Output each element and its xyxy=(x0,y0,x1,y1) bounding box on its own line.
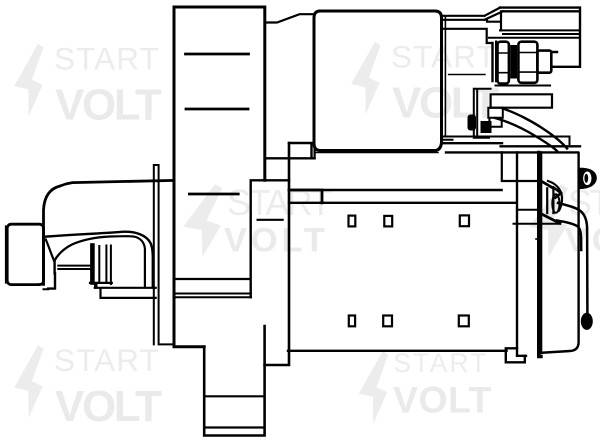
svg-text:START: START xyxy=(394,348,489,378)
svg-text:VOLT: VOLT xyxy=(224,222,329,260)
svg-text:VOLT: VOLT xyxy=(565,222,600,260)
svg-text:VOLT: VOLT xyxy=(393,379,492,421)
